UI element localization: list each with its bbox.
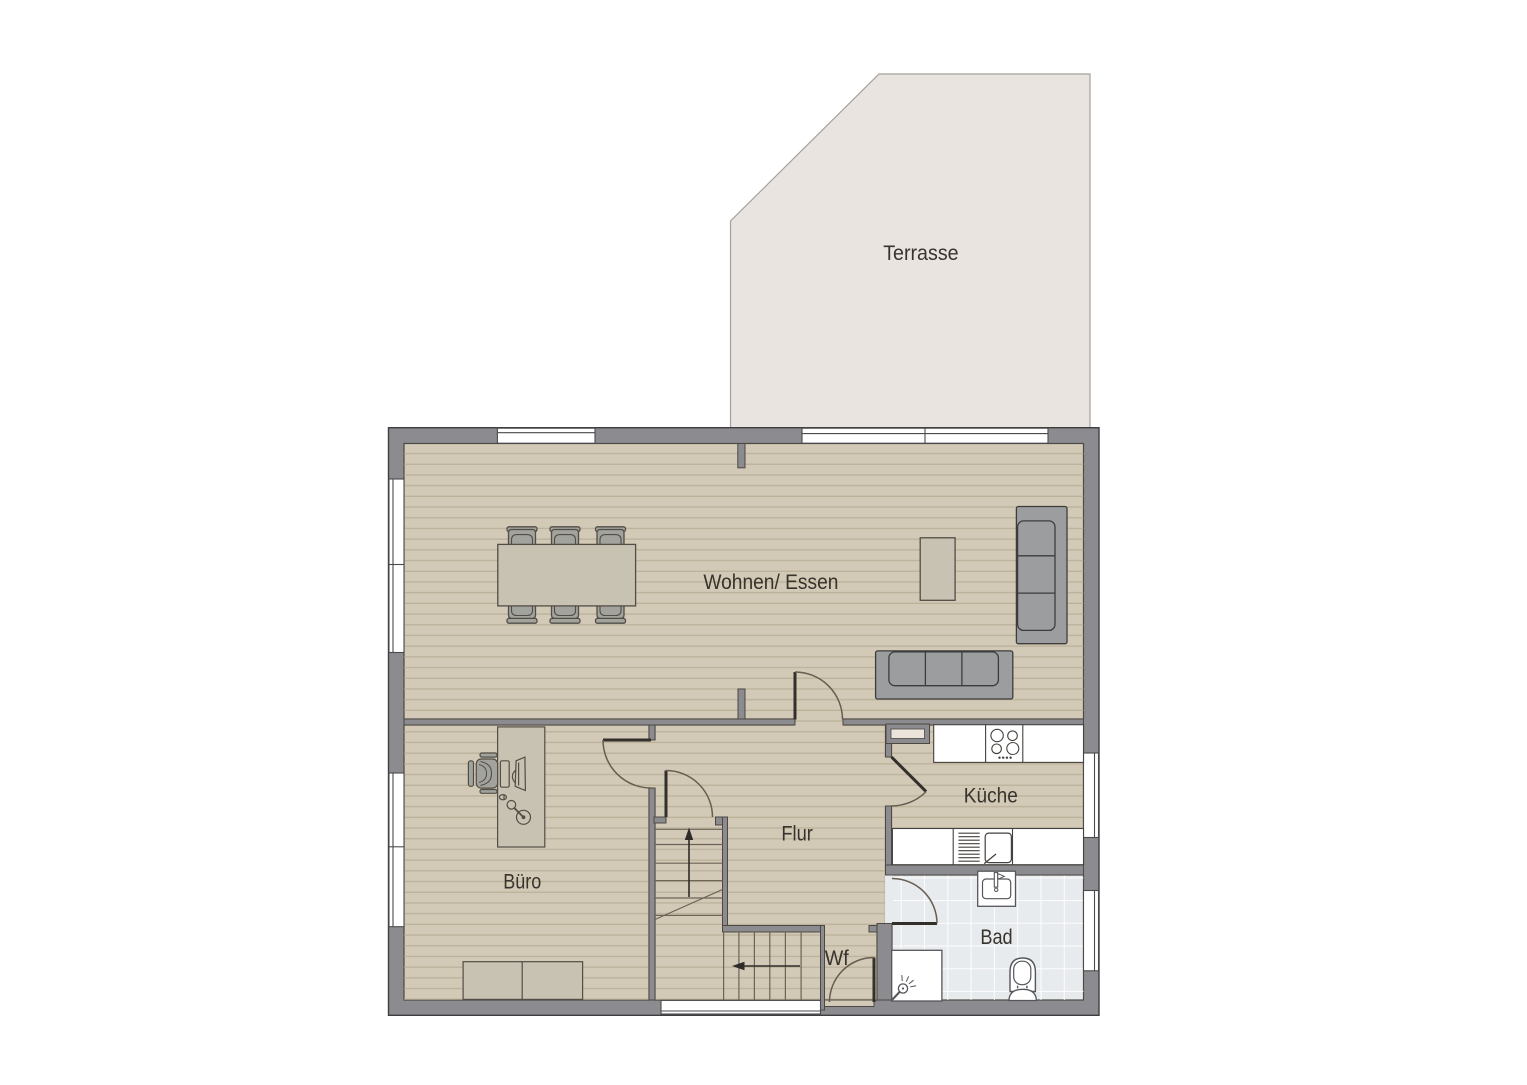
svg-text:Flur: Flur [781,823,813,846]
svg-text:Küche: Küche [964,784,1018,807]
svg-text:Büro: Büro [503,870,541,893]
svg-text:Terrasse: Terrasse [883,242,958,265]
svg-text:Bad: Bad [980,926,1012,949]
svg-text:Wohnen/ Essen: Wohnen/ Essen [703,571,838,594]
svg-text:Wf: Wf [825,947,849,970]
